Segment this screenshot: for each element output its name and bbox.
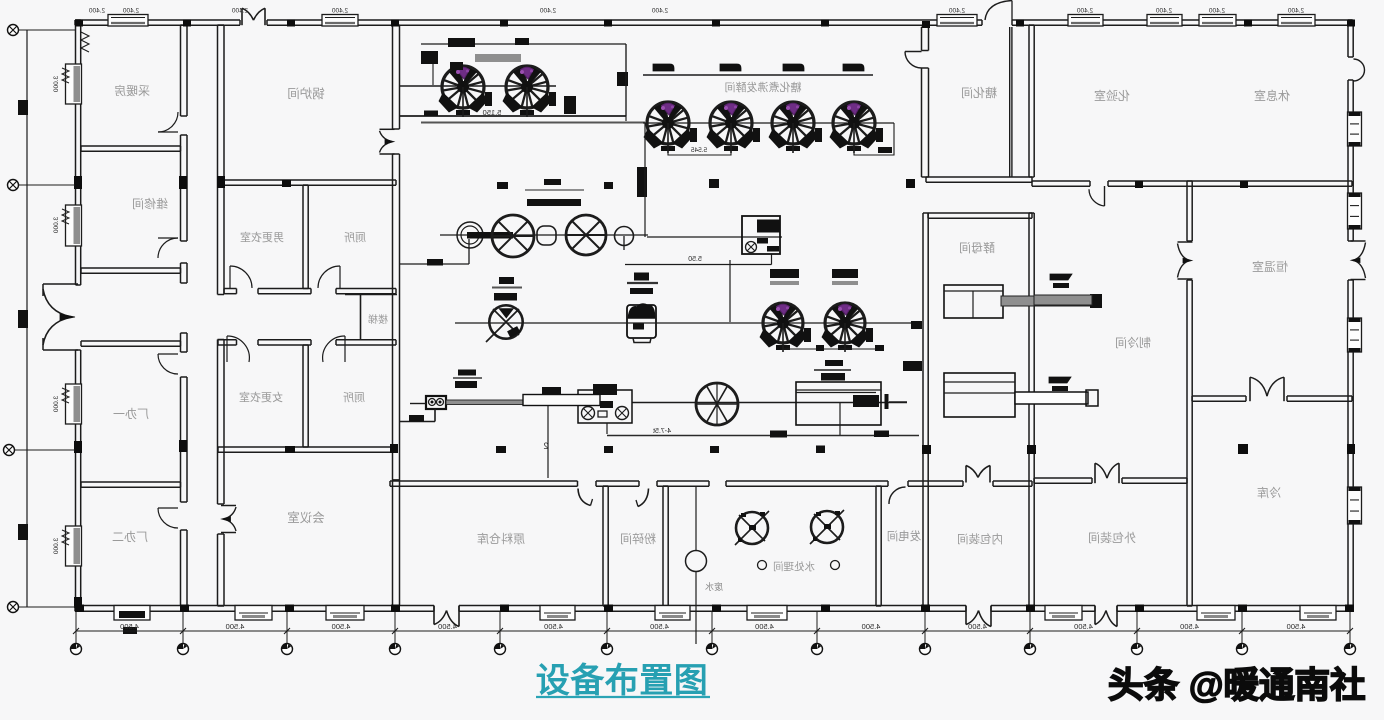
svg-text:3.000: 3.000: [53, 217, 60, 234]
svg-text:4.500: 4.500: [755, 622, 774, 631]
svg-text:外包装间: 外包装间: [1088, 531, 1136, 545]
svg-text:5.50: 5.50: [688, 256, 702, 263]
svg-text:4.500: 4.500: [1180, 622, 1199, 631]
svg-text:2.400: 2.400: [88, 8, 105, 15]
svg-text:发电间: 发电间: [887, 529, 922, 543]
svg-text:5.545: 5.545: [690, 147, 707, 154]
svg-text:3.000: 3.000: [53, 538, 60, 555]
svg-text:2.400: 2.400: [1287, 8, 1304, 15]
svg-text:糖化间: 糖化间: [961, 85, 997, 100]
svg-text:头条 @暖通南社: 头条 @暖通南社: [1108, 665, 1365, 705]
svg-text:休息室: 休息室: [1254, 88, 1290, 103]
svg-text:3.000: 3.000: [53, 396, 60, 413]
svg-text:4.500: 4.500: [332, 622, 351, 631]
svg-text:4.500: 4.500: [544, 622, 563, 631]
svg-text:2: 2: [543, 441, 548, 451]
svg-text:化验室: 化验室: [1094, 88, 1130, 103]
svg-text:楼梯: 楼梯: [368, 313, 388, 326]
svg-text:厕所: 厕所: [343, 391, 365, 404]
svg-text:冷库: 冷库: [1257, 485, 1281, 500]
svg-text:4.500: 4.500: [650, 622, 669, 631]
svg-text:4-7.5t: 4-7.5t: [653, 428, 671, 435]
svg-text:2.400: 2.400: [1208, 8, 1225, 15]
svg-text:2.400: 2.400: [231, 8, 248, 15]
svg-text:2.400: 2.400: [539, 8, 556, 15]
svg-text:水处理间: 水处理间: [773, 560, 815, 573]
svg-text:维修间: 维修间: [132, 196, 168, 211]
svg-text:4.500: 4.500: [226, 622, 245, 631]
svg-text:制冷间: 制冷间: [1115, 336, 1151, 350]
svg-text:4.500: 4.500: [120, 622, 139, 631]
svg-text:粉碎间: 粉碎间: [620, 531, 656, 546]
svg-text:设备布置图: 设备布置图: [536, 662, 709, 700]
svg-text:原料仓库: 原料仓库: [477, 531, 525, 546]
svg-text:2.400: 2.400: [948, 8, 965, 15]
svg-text:3.000: 3.000: [53, 76, 60, 93]
svg-text:5.150: 5.150: [483, 108, 502, 117]
svg-text:采暖房: 采暖房: [114, 83, 150, 98]
svg-text:糖化煮沸发酵间: 糖化煮沸发酵间: [725, 80, 802, 94]
svg-text:2.400: 2.400: [331, 8, 348, 15]
svg-text:厂办二: 厂办二: [112, 529, 148, 544]
svg-text:4.500: 4.500: [1074, 622, 1093, 631]
svg-text:2.400: 2.400: [1155, 8, 1172, 15]
svg-text:锅炉间: 锅炉间: [287, 86, 325, 101]
svg-text:酵母间: 酵母间: [959, 241, 995, 255]
svg-text:2.400: 2.400: [1076, 8, 1093, 15]
svg-text:恒温室: 恒温室: [1252, 259, 1288, 274]
svg-text:内包装间: 内包装间: [957, 532, 1003, 546]
svg-text:厂办一: 厂办一: [113, 406, 149, 421]
svg-text:厕所: 厕所: [344, 231, 366, 244]
svg-text:女更衣室: 女更衣室: [239, 390, 283, 404]
svg-text:4.500: 4.500: [862, 622, 881, 631]
svg-text:4.500: 4.500: [968, 622, 987, 631]
svg-text:4.500: 4.500: [1287, 622, 1306, 631]
svg-text:4.500: 4.500: [438, 622, 457, 631]
svg-text:2.400: 2.400: [651, 8, 668, 15]
svg-text:男更衣室: 男更衣室: [240, 230, 284, 244]
svg-text:2.400: 2.400: [122, 8, 139, 15]
svg-text:废水: 废水: [705, 581, 723, 592]
svg-text:会议室: 会议室: [287, 510, 325, 525]
